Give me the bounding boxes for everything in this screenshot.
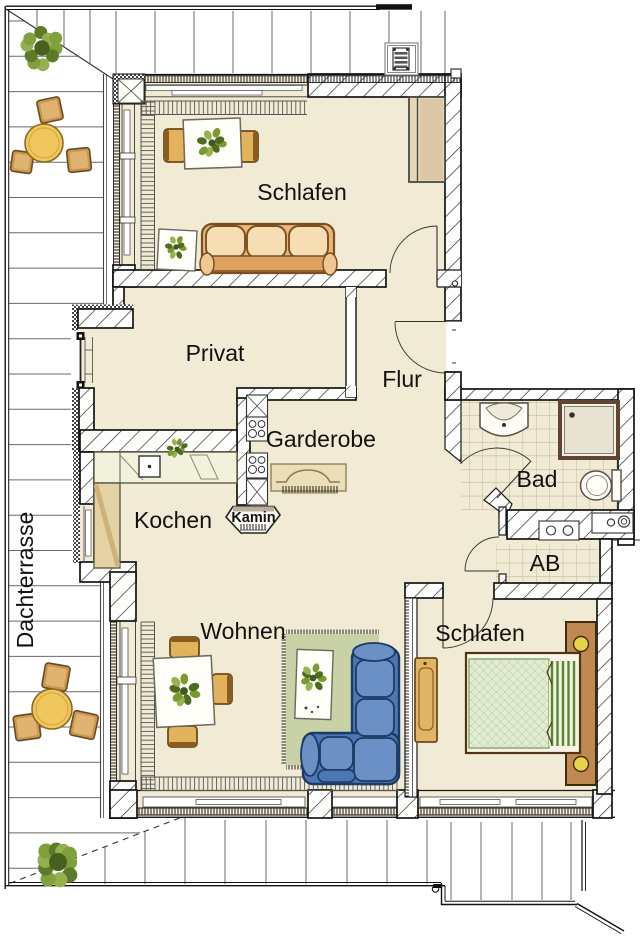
svg-text:Wohnen: Wohnen	[200, 618, 285, 644]
svg-text:Bad: Bad	[517, 466, 558, 492]
svg-text:Dachterrasse: Dachterrasse	[12, 512, 38, 649]
svg-text:AB: AB	[530, 550, 561, 576]
svg-text:Garderobe: Garderobe	[266, 426, 376, 452]
svg-text:Schlafen: Schlafen	[435, 620, 525, 646]
svg-text:Kochen: Kochen	[134, 507, 212, 533]
svg-text:Schlafen: Schlafen	[257, 179, 347, 205]
svg-text:Privat: Privat	[186, 340, 245, 366]
svg-text:Kamin: Kamin	[231, 510, 275, 526]
svg-text:Flur: Flur	[382, 366, 422, 392]
